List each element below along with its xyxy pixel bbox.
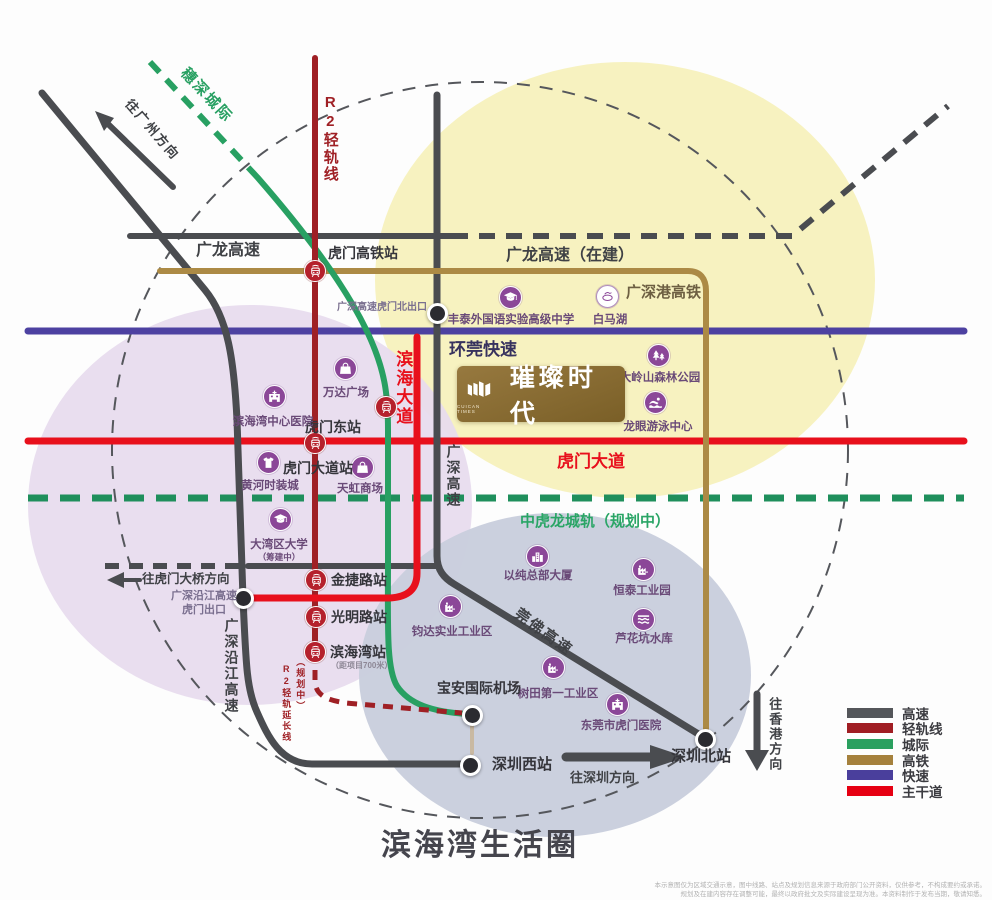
binhaiwan-hospital [263,385,286,408]
huanghe-fashion-city-label: 黄河时装城 [241,479,299,493]
cap-icon [503,290,518,305]
legend-swatch [847,755,893,765]
legend-swatch [847,723,893,733]
waves-icon [636,612,651,627]
building-icon [530,549,545,564]
baima-lake-label: 白马湖 [593,313,628,327]
legend-swatch [847,739,893,749]
factory-icon [546,660,561,675]
disclaimer-line-2: 规划及在建内容存在调整可能，最终以政府批文及实际建设呈现为准。本资料制作于发布当… [681,891,987,898]
humen-avenue-label: 虎门大道 [557,451,625,472]
binhaiwan-station-sublabel: （距项目700米） [331,661,392,671]
fengtai-school [499,286,522,309]
to-shenzhen-label: 往深圳方向 [570,770,635,786]
bag-icon [338,361,353,376]
binhai-avenue-label: 滨海大道 [392,350,413,426]
lake-icon [600,289,615,304]
luhuakeng-reservoir-label: 芦花坑水库 [615,632,673,646]
clothes-icon [261,455,276,470]
binhaiwan-hospital-label: 滨海湾中心医院 [233,415,314,429]
guangming-road-station-label: 光明路站 [331,609,387,627]
yichun-hq-tower-label: 以纯总部大厦 [504,569,573,583]
map-title: 滨海湾生活圈 [381,820,579,864]
baima-lake [596,285,619,308]
yanjiang-label: 广深沿江高速 [222,618,240,714]
train-icon [308,645,323,660]
guanglong-uc-label: 广龙高速（在建） [506,246,634,266]
baoan-airport-label: 宝安国际机场 [437,680,521,698]
factory-icon [636,562,651,577]
luhuakeng-reservoir [632,608,655,631]
shenzhen-west-station [460,755,481,776]
guangshen-label: 广深高速 [444,444,462,508]
longyan-swim-center-label: 龙眼游泳中心 [624,420,693,434]
hospital-icon [267,389,282,404]
project-logo-icon: CUICAN TIMES [457,375,501,414]
bag-icon [355,460,370,475]
humen-avenue-station-label: 虎门大道站 [283,460,353,478]
shenzhen-west-label: 深圳西站 [492,756,552,775]
binhaiwan-station [304,641,326,663]
guangshen-humen-north-exit [427,303,448,324]
guanglong-label: 广龙高速 [196,241,260,261]
yichun-hq-tower [526,545,549,568]
humen-hsr-station-label: 虎门高铁站 [328,245,398,263]
tree-icon [651,348,666,363]
shutian-industrial-zone-label: 树田第一工业区 [518,687,599,701]
tianhong-mall [351,456,374,479]
north-exit-label: 广深高速虎门北出口 [337,302,427,315]
project-logo: CUICAN TIMES 璀璨时代 [457,366,625,422]
r2-ext-label: R2轻轨延长线 [280,664,291,743]
factory-icon [443,599,458,614]
greater-bay-university [269,508,292,531]
jinjie-road-station-label: 金捷路站 [331,572,387,590]
tianhong-mall-label: 天虹商场 [337,482,383,496]
shenzhen-north-label: 深圳北站 [671,748,731,767]
disclaimer: 本示意图仅为区域交通示意，图中线路、站点及规划信息来源于政府部门公开资料，仅供参… [641,881,986,899]
swim-icon [648,395,663,410]
hengtai-industrial-park-label: 恒泰工业园 [613,584,671,598]
legend-swatch [847,786,893,796]
jinjie-road-station [305,569,327,591]
greater-bay-university-sublabel: （筹建中） [258,552,301,563]
train-icon [309,573,324,588]
to-hongkong-label: 往香港方向 [766,697,782,772]
legend-swatch [847,770,893,780]
dalingshan-forest-park [647,344,670,367]
junda-industrial-zone-label: 钧达实业工业区 [412,625,493,639]
zhonghulong-label: 中虎龙城轨（规划中） [520,513,670,532]
dalingshan-forest-park-label: 大岭山森林公园 [620,371,701,385]
huanguan-label: 环莞快速 [449,339,517,360]
greater-bay-university-label: 大湾区大学 [250,538,308,552]
project-logo-text: 璀璨时代 [510,358,625,430]
baoan-airport [462,705,483,726]
to-humen-bridge-label: 往虎门大桥方向 [142,572,230,588]
longyan-swim-center [644,391,667,414]
r2-ext-label-2: （规划中） [294,657,305,712]
junda-industrial-zone [439,595,462,618]
yanjiang-exit-label: 广深沿江高速 虎门出口 [171,590,237,618]
huanghe-fashion-city [257,451,280,474]
train-icon [309,610,324,625]
project-logo-subtext: CUICAN TIMES [457,404,501,414]
train-icon [308,436,323,451]
dongguan-humen-hospital-label: 东莞市虎门医院 [581,719,662,733]
cap-icon [273,512,288,527]
fengtai-school-label: 丰泰外国语实验高级中学 [448,313,575,327]
wanda-plaza [334,357,357,380]
shutian-industrial-zone [542,656,565,679]
wanda-plaza-label: 万达广场 [323,386,369,400]
r2-label: R2轻轨线 [320,94,339,183]
shenzhen-north-station [695,729,716,750]
transit-location-map: 虎门高铁站虎门东站虎门大道站金捷路站光明路站滨海湾站（距项目700米）丰泰外国语… [0,0,992,900]
humen-hsr-station [304,260,326,282]
gshk-hsr-label: 广深港高铁 [626,284,701,303]
hengtai-industrial-park [632,558,655,581]
guangming-road-station [305,606,327,628]
hospital-icon [610,697,625,712]
train-icon [308,264,323,279]
legend-item-6: 主干道 [847,783,943,799]
dongguan-humen-hospital [606,693,629,716]
binhaiwan-station-label: 滨海湾站 [330,644,386,662]
legend: 高速轻轨线城际高铁快速主干道 [847,705,943,799]
disclaimer-line-1: 本示意图仅为区域交通示意，图中线路、站点及规划信息来源于政府部门公开资料，仅供参… [655,882,987,889]
legend-item-label: 主干道 [902,781,943,801]
legend-swatch [847,708,893,718]
